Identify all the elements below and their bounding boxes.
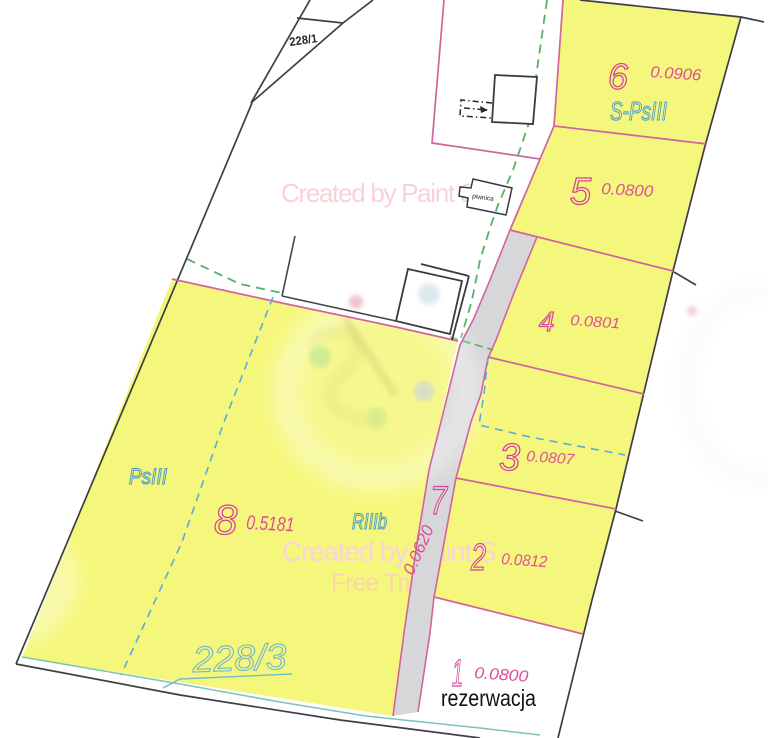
svg-text:0.0801: 0.0801 [570,312,621,332]
svg-text:8: 8 [214,496,238,543]
svg-text:Created by Paint S: Created by Paint S [282,536,496,567]
svg-text:2: 2 [470,537,486,579]
svg-text:rezerwacja: rezerwacja [441,685,536,711]
svg-text:0.0906: 0.0906 [650,64,702,85]
svg-text:7: 7 [430,479,448,523]
svg-text:4: 4 [539,306,555,337]
svg-text:Created by Paint S: Created by Paint S [281,178,477,208]
svg-text:228/3: 228/3 [191,636,287,680]
svg-text:PsIII: PsIII [129,464,167,489]
svg-text:0.0807: 0.0807 [526,448,576,468]
svg-text:5: 5 [570,171,592,213]
svg-text:S-PsIII: S-PsIII [610,96,667,126]
svg-text:0.5181: 0.5181 [246,512,295,536]
svg-text:0.0812: 0.0812 [501,551,548,571]
svg-text:3: 3 [499,437,520,479]
svg-text:RIIIb: RIIIb [352,509,387,534]
svg-text:0.0800: 0.0800 [601,181,654,201]
svg-text:6: 6 [608,56,629,97]
